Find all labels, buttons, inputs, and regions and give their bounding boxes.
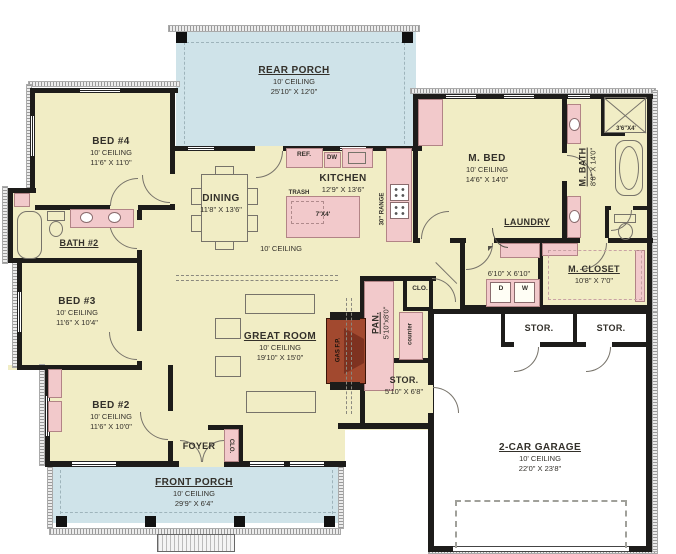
wall-garage-west [428, 309, 434, 552]
post-rear-porch-left [176, 32, 187, 43]
dash-front-porch-bottom [60, 512, 336, 513]
garage-label: 2-CAR GARAGE 10' CEILING 22'0" X 23'8" [499, 441, 581, 474]
wall-laundry-west [460, 238, 465, 310]
hatch-bed4-top [28, 81, 180, 87]
pantry-label: PAN. 5'10"x8'0" [371, 307, 392, 340]
great-room-label: GREAT ROOM 10' CEILING 19'10" X 15'0" [244, 330, 316, 363]
open-area-ceiling-label: 10' CEILING [260, 244, 302, 254]
wall-garage-east [646, 309, 652, 552]
fireplace-label: GAS F.P. [335, 338, 343, 362]
fireplace-wall-bottom [330, 382, 360, 390]
bed4-label: BED #4 10' CEILING 11'6" X 11'0" [90, 135, 132, 168]
dining-chair-4 [247, 215, 258, 232]
floor-plan: REAR PORCH 10' CEILING 25'10" X 12'0" BE… [0, 0, 676, 554]
shelf-bath2 [14, 193, 30, 207]
dining-label: DINING 11'8" X 13'6" [200, 192, 242, 215]
window-bed4-top [80, 88, 120, 93]
wall-bath2-left [8, 188, 13, 263]
window-bed4-left [30, 116, 35, 156]
dryer-label: D [499, 285, 504, 293]
dining-chair-6 [215, 241, 234, 250]
range-burners-1 [390, 184, 409, 201]
window-bed3-left [17, 292, 22, 332]
island-label: 7'X4' [316, 211, 331, 219]
kitchen-label: KITCHEN 12'9" X 13'6" [319, 172, 366, 195]
dash-hall-1 [346, 298, 347, 414]
trash-label: TRASH [289, 190, 310, 198]
dash-dining-great-1 [176, 275, 338, 276]
wall-east [647, 94, 652, 313]
dash-hall-2 [351, 298, 352, 414]
dash-front-porch-right [332, 470, 333, 514]
sink-mbath-2 [569, 210, 580, 223]
toilet-bath2-tank [47, 211, 65, 221]
wall-bed4-right [170, 88, 175, 150]
patch-bath2-door [137, 220, 142, 250]
tub-mbath-inner [619, 146, 639, 190]
sink-bath2-1 [80, 212, 93, 223]
post-front-porch-3 [234, 516, 245, 527]
window-mbed-top-1 [446, 94, 476, 99]
stor-right-label: STOR. [597, 323, 626, 335]
post-front-porch-1 [56, 516, 67, 527]
fridge-label: REF. [297, 151, 311, 159]
sofa-north [245, 294, 315, 314]
hall-closet-label: CLO. [412, 285, 428, 293]
m-bed-label: M. BED 10' CEILING 14'6" X 14'0" [466, 152, 508, 185]
hatch-east-wing [652, 90, 658, 313]
closet-bed2-1 [48, 369, 62, 398]
laundry-dims-label: 6'10" X 6'10" [488, 269, 530, 279]
window-great-south-1 [250, 461, 284, 467]
dash-rear-porch-right [404, 42, 405, 144]
range-label: 30" RANGE [379, 193, 387, 226]
post-front-porch-4 [324, 516, 335, 527]
dash-dining-great-2 [176, 280, 338, 281]
dining-chair-5 [215, 166, 234, 175]
wall-bed3-bottom [17, 365, 142, 370]
sofa-south [246, 391, 316, 413]
front-steps [157, 534, 235, 552]
dining-chair-3 [247, 188, 258, 205]
fireplace-wall-top [330, 312, 360, 320]
sink-bath2-2 [108, 212, 121, 223]
mbed-dresser [418, 99, 443, 146]
pantry-counter-label: counter [407, 323, 415, 345]
post-front-porch-2 [145, 516, 156, 527]
patch-bed3-door [137, 331, 142, 361]
window-great-south-2 [290, 461, 324, 467]
stor-center-label: STOR. 5'10" X 6'8" [385, 375, 423, 396]
dining-chair-2 [191, 215, 202, 232]
wall-stor-div [573, 311, 577, 345]
hatch-rear-porch-top [168, 25, 420, 32]
bed3-label: BED #3 10' CEILING 11'6" X 10'4" [56, 295, 98, 328]
patch-bed2-door [168, 411, 173, 441]
hatch-front-porch-right [338, 465, 344, 529]
washer-label: W [522, 285, 528, 293]
sink-basin [348, 152, 366, 164]
range-burners-2 [390, 202, 409, 219]
wall-clo1-south [403, 307, 433, 311]
closet-bed2-2 [48, 401, 62, 432]
bath2-label: BATH #2 [60, 238, 99, 250]
window-mbed-top-2 [504, 94, 534, 99]
m-closet-label: M. CLOSET 10'8" X 7'0" [568, 264, 620, 285]
garage-bay-dash [455, 500, 627, 548]
wall-garage-north [428, 309, 652, 314]
dishwasher-label: DW [327, 155, 337, 163]
hatch-front-porch-left [47, 465, 53, 529]
wall-stor-south-west [338, 423, 432, 429]
tub-bath2 [17, 211, 42, 259]
window-mbath-top [568, 94, 590, 99]
stor-left-label: STOR. [525, 323, 554, 335]
dash-rear-porch-top [186, 42, 404, 43]
front-porch-label: FRONT PORCH 10' CEILING 29'9" X 6'4" [155, 476, 233, 509]
armchair-1 [215, 318, 241, 339]
wall-wc-west [605, 206, 609, 241]
window-dining-top [188, 146, 214, 151]
laundry-arrow-head [488, 246, 493, 251]
foyer-closet-label: CLO. [228, 439, 234, 453]
window-bed2-bottom [72, 461, 116, 467]
dash-rear-porch-left [184, 42, 185, 144]
foyer-label: FOYER [183, 441, 216, 453]
post-rear-porch-right [402, 32, 413, 43]
wall-clo1-west [403, 276, 407, 311]
hatch-garage-east [652, 311, 658, 554]
toilet-mbath-bowl [618, 223, 633, 240]
dash-front-porch-left [60, 470, 61, 514]
sink-mbath-1 [569, 118, 580, 131]
armchair-2 [215, 356, 241, 377]
wall-stor-left [501, 311, 505, 345]
patch-hall-door [170, 174, 175, 204]
toilet-mbath-tank [614, 214, 636, 223]
toilet-bath2-bowl [49, 221, 63, 237]
m-bath-label: M. BATH 8'8" X 14'0" [578, 148, 599, 187]
shower-dims-label: 3'6"X4' [616, 126, 636, 134]
bed2-label: BED #2 10' CEILING 11'6" X 10'0" [90, 399, 132, 432]
rear-porch-label: REAR PORCH 10' CEILING 25'10" X 12'0" [258, 64, 329, 97]
laundry-label: LAUNDRY [504, 217, 550, 229]
